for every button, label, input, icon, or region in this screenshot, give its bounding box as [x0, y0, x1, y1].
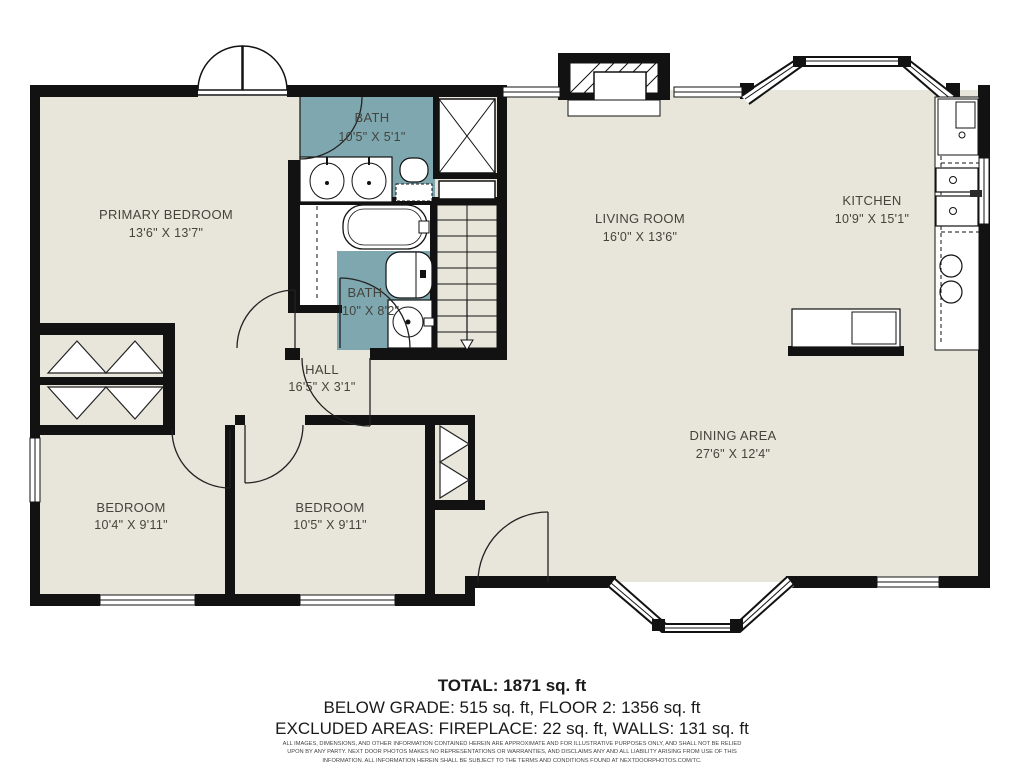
fireplace — [558, 53, 670, 116]
svg-text:10'5" X 9'11": 10'5" X 9'11" — [293, 518, 367, 532]
svg-text:10'5" X 5'1": 10'5" X 5'1" — [338, 130, 405, 144]
floor-plan-page: PRIMARY BEDROOM 13'6" X 13'7" BATH 10'5"… — [0, 0, 1024, 768]
svg-text:10'4" X 9'11": 10'4" X 9'11" — [94, 518, 168, 532]
tub-faucet — [419, 221, 429, 233]
faucet — [970, 190, 982, 197]
excluded-areas-text: EXCLUDED AREAS: FIREPLACE: 22 sq. ft, WA… — [0, 719, 1024, 739]
svg-text:BATH: BATH — [348, 285, 383, 300]
window-dining — [877, 577, 939, 587]
window-bedroom-2 — [300, 595, 395, 605]
svg-text:KITCHEN: KITCHEN — [842, 193, 901, 208]
svg-text:13'6" X 13'7": 13'6" X 13'7" — [129, 226, 204, 240]
svg-text:BEDROOM: BEDROOM — [295, 500, 364, 515]
svg-text:16'0" X 13'6": 16'0" X 13'6" — [603, 230, 678, 244]
window-bedroom-1 — [100, 595, 195, 605]
window-top-2 — [674, 87, 742, 97]
double-door — [198, 46, 287, 96]
svg-text:BATH: BATH — [355, 110, 390, 125]
svg-text:10'9" X 15'1": 10'9" X 15'1" — [835, 212, 910, 226]
window-left — [30, 438, 40, 502]
svg-text:DINING AREA: DINING AREA — [689, 428, 776, 443]
linen-closet — [439, 181, 495, 199]
svg-text:BEDROOM: BEDROOM — [96, 500, 165, 515]
window-top-1 — [503, 87, 560, 97]
svg-text:HALL: HALL — [305, 362, 339, 377]
dishwasher — [852, 312, 896, 344]
svg-text:16'5" X 3'1": 16'5" X 3'1" — [288, 380, 355, 394]
area-breakdown-text: BELOW GRADE: 515 sq. ft, FLOOR 2: 1356 s… — [0, 698, 1024, 718]
total-area-text: TOTAL: 1871 sq. ft — [0, 676, 1024, 696]
toilet-icon — [400, 158, 428, 182]
floor-plan-svg: PRIMARY BEDROOM 13'6" X 13'7" BATH 10'5"… — [0, 0, 1024, 650]
bay-window-bottom — [608, 577, 794, 632]
svg-text:10" X 8'2": 10" X 8'2" — [342, 304, 399, 318]
primary-closet-floor — [300, 202, 337, 312]
svg-text:PRIMARY BEDROOM: PRIMARY BEDROOM — [99, 207, 233, 222]
svg-text:27'6" X 12'4": 27'6" X 12'4" — [696, 447, 771, 461]
disclaimer-text: ALL IMAGES, DIMENSIONS, AND OTHER INFORM… — [282, 740, 742, 765]
svg-text:LIVING ROOM: LIVING ROOM — [595, 211, 685, 226]
shower — [439, 99, 495, 173]
